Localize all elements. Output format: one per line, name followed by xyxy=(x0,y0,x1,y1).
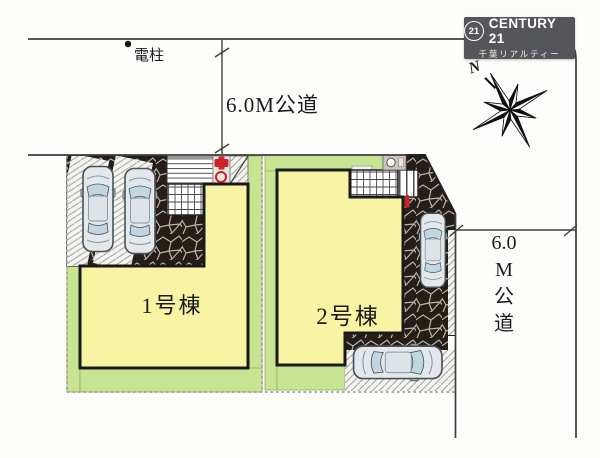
right-road-label-line4: 道 xyxy=(486,311,522,338)
car-icon-lot1-left xyxy=(81,167,115,252)
top-road-label: 6.0M公道 xyxy=(226,89,319,119)
car-icon-lot1-right xyxy=(123,169,157,254)
century21-subtitle: 千葉リアルティー xyxy=(479,48,561,60)
building-2-label: 2号棟 xyxy=(294,297,402,331)
century21-badge-icon: 21 xyxy=(464,21,484,41)
right-road-label-line3: 公 xyxy=(486,284,522,311)
right-road-label: 6.0 M 公 道 xyxy=(486,230,522,338)
terrace-lot2 xyxy=(350,170,398,197)
lawn-lot2-bottom xyxy=(277,366,345,390)
entrance-steps-lot1 xyxy=(167,157,213,184)
water-meter-box-icon xyxy=(383,155,406,170)
building-1-label: 1号棟 xyxy=(119,288,225,320)
century21-brand-text: CENTURY 21 xyxy=(489,16,575,46)
hydrant-icon xyxy=(405,195,410,208)
century21-logo: 21 CENTURY 21 千葉リアルティー xyxy=(464,17,575,59)
car-icon-lot2-bottom xyxy=(354,344,442,381)
right-road-label-line1: 6.0 xyxy=(486,230,522,257)
lawn-lot1-bottom xyxy=(80,367,262,392)
utility-pole-dot xyxy=(125,41,131,47)
entrance-steps-lot2 xyxy=(398,170,418,197)
car-icon-lot2-side xyxy=(419,213,447,287)
utility-pole-label: 電柱 xyxy=(134,44,164,65)
slope-pad-lot1 xyxy=(230,156,248,184)
driveway-strip-lot2-right xyxy=(448,230,455,335)
terrace-lot1 xyxy=(167,184,204,215)
century21-logo-row: 21 CENTURY 21 xyxy=(464,16,575,46)
site-plan-page: N 電柱 6.0M公道 6.0 M 公 道 1号棟 2号棟 21 CENTURY… xyxy=(0,0,600,458)
right-road-label-line2: M xyxy=(486,257,522,284)
lawn-lot1-left xyxy=(67,262,80,392)
lawn-lot2-left xyxy=(265,171,277,390)
